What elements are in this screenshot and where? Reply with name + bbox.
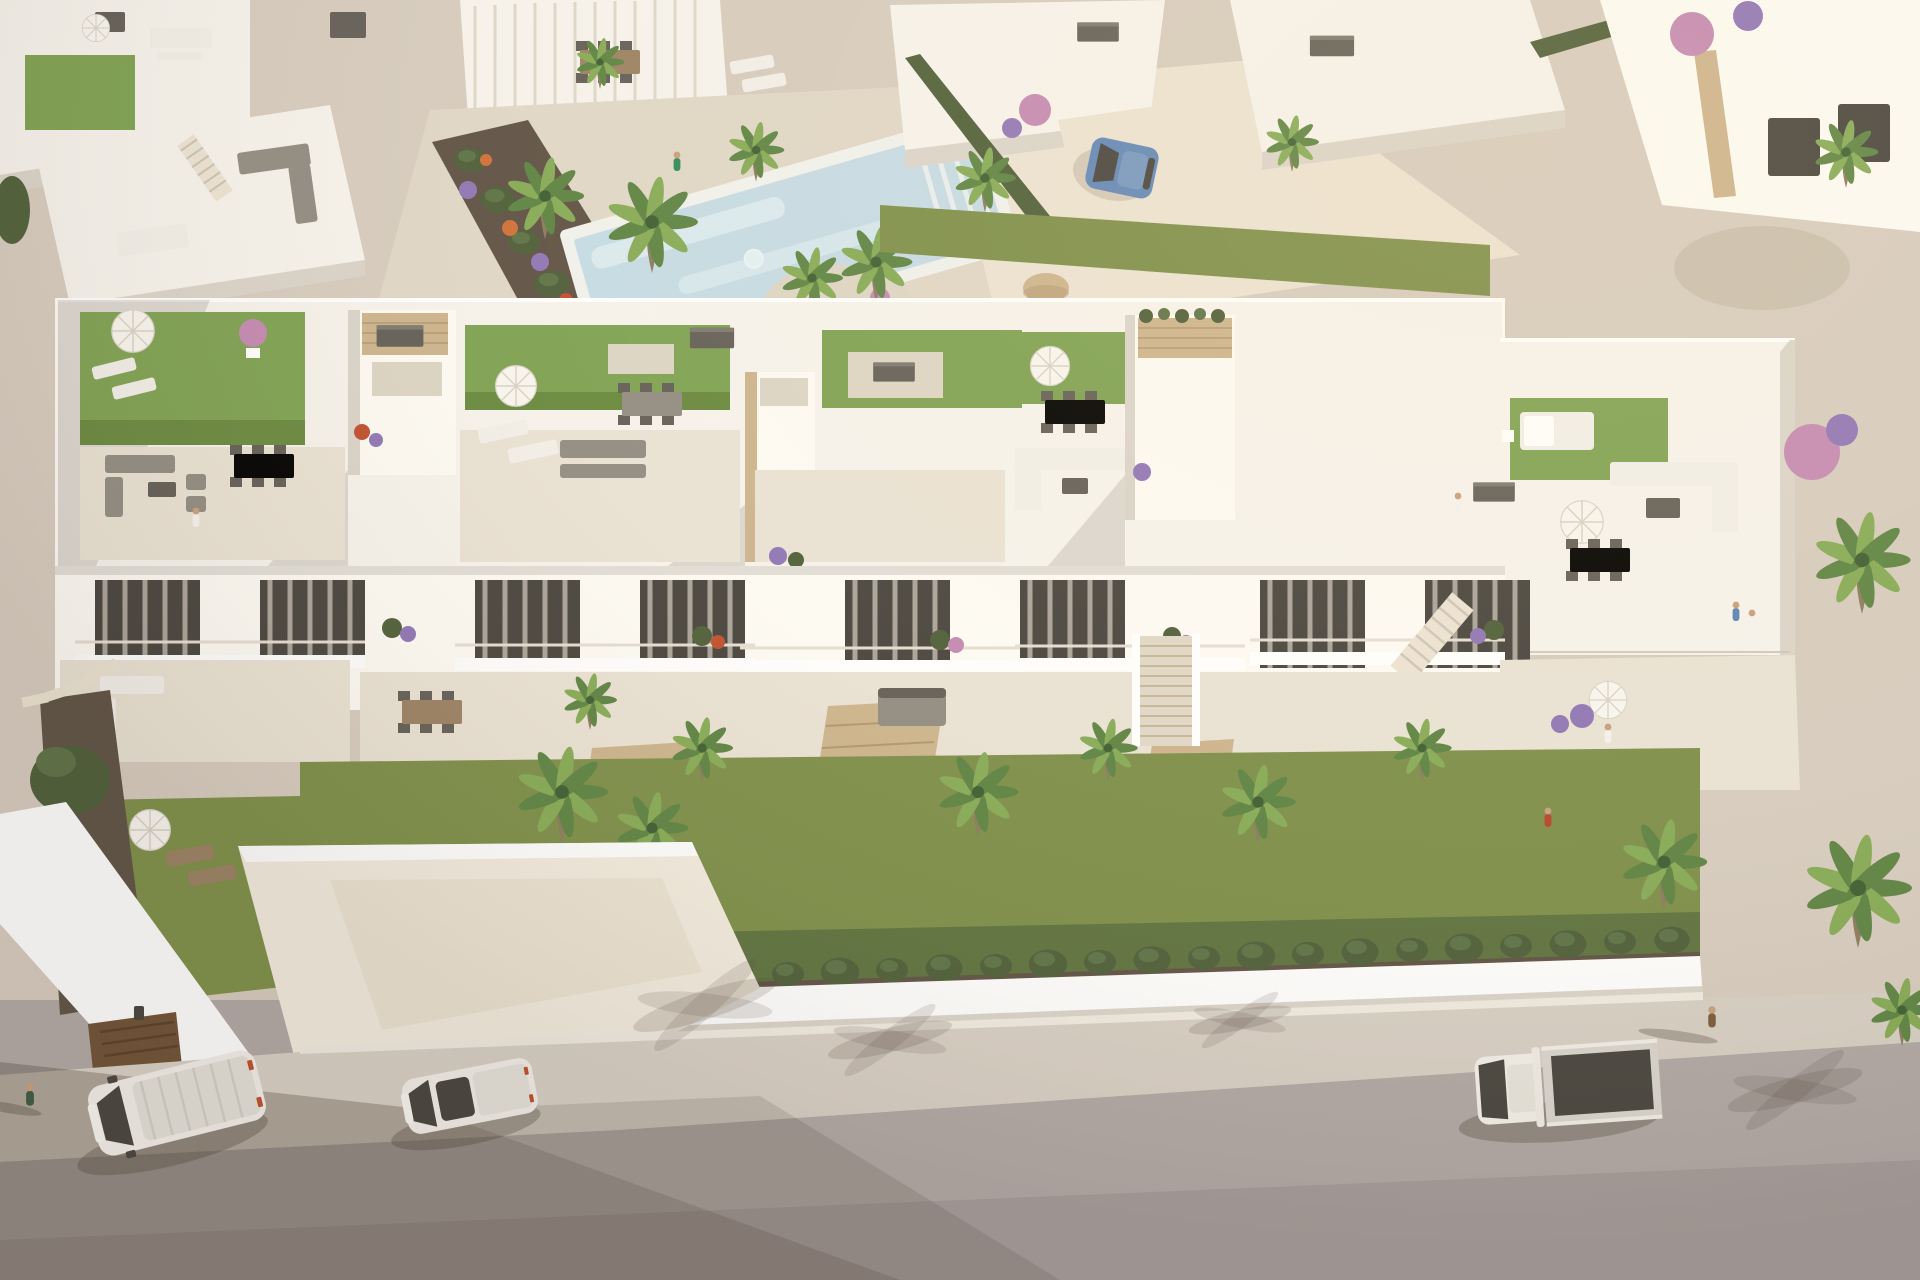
person-on-roof	[1733, 602, 1740, 621]
stair-tower	[1125, 308, 1235, 520]
person-on-roof	[1749, 610, 1756, 629]
roof-dining-set	[618, 383, 682, 425]
neighbour-roof-lawn	[25, 55, 135, 130]
white-parasol	[1561, 501, 1604, 544]
person-on-roof	[1455, 493, 1462, 512]
stair-tower	[348, 310, 456, 475]
roof-dining-set	[230, 445, 294, 487]
rooftop-unit-2	[460, 325, 740, 562]
main-building	[55, 298, 1911, 710]
person-on-balcony	[1605, 724, 1612, 743]
white-parasol	[496, 366, 537, 407]
pedestrian	[674, 152, 681, 171]
person-in-garden	[1545, 808, 1552, 827]
white-parasol	[112, 310, 155, 353]
planter-tree	[239, 319, 267, 347]
person-on-roof	[193, 508, 200, 527]
white-parasol	[1030, 346, 1069, 385]
garden-stair	[1132, 634, 1200, 746]
rendered-scene: Aerial 3D architectural rendering of a m…	[0, 0, 1920, 1280]
roof-dining-set	[1041, 391, 1105, 433]
roof-dining-set	[1566, 539, 1630, 581]
aerial-render: Aerial 3D architectural rendering of a m…	[0, 0, 1920, 1280]
